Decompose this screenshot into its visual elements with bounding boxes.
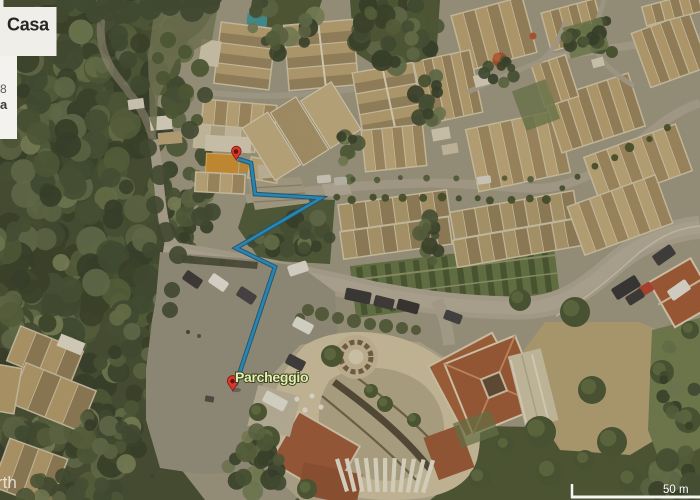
svg-text:a: a <box>0 97 8 112</box>
svg-text:Casa: Casa <box>7 15 50 35</box>
svg-text:8: 8 <box>0 82 7 96</box>
svg-text:rth: rth <box>0 473 17 492</box>
svg-text:Parcheggio: Parcheggio <box>235 369 308 385</box>
svg-text:50 m: 50 m <box>663 484 689 496</box>
